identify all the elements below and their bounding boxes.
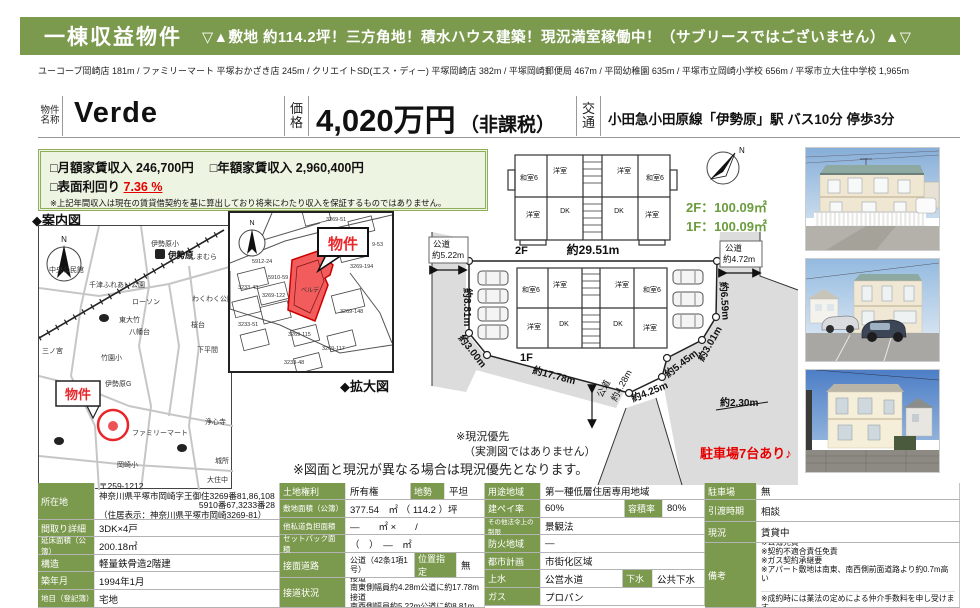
cell: 第一種低層住居専用地域 <box>541 483 705 499</box>
cell: 市街化区域 <box>541 553 705 569</box>
cell: 1994年1月 <box>95 572 280 589</box>
cell: 無 <box>457 553 485 577</box>
price-value: 4,020万円 （非課税） <box>316 95 555 140</box>
cell: 所有権 <box>346 483 411 499</box>
access-label: 交 通 <box>576 96 601 136</box>
svg-text:洋室: 洋室 <box>643 323 657 332</box>
photo-2-image <box>806 259 939 361</box>
guide-map-svg: N 伊勢原 伊勢原小 しまむら 中央公民館 千津ふれあい公園 ローソン わくわく… <box>39 226 233 490</box>
cell: 無 <box>757 483 960 499</box>
cell: ― <box>541 535 705 552</box>
svg-text:DK: DK <box>560 208 570 215</box>
row-header: 構造 <box>38 555 95 571</box>
map-label: 伊勢原小 <box>151 239 179 248</box>
row-header: その他法令上の制限 <box>485 518 541 534</box>
row-header: 引渡時期 <box>705 500 757 521</box>
row-header: 用途地域 <box>485 483 541 499</box>
parcel-name: ベルデ <box>301 286 319 294</box>
row-header: 接面道路 <box>280 553 346 577</box>
map-label: 三ノ宮 <box>42 346 63 355</box>
cell: 公道（42条1項1号） <box>346 553 415 577</box>
sub-header: 容積率 <box>625 500 663 517</box>
area-2f: 2F：100.09㎡ <box>686 200 767 215</box>
cell: 公営水道 <box>541 570 623 587</box>
cell: 377.54 ㎡ （ 114.2 ）坪 <box>346 500 485 517</box>
property-row-divider <box>38 137 960 138</box>
svg-text:3269-148: 3269-148 <box>340 309 363 315</box>
svg-text:3269-122: 3269-122 <box>262 293 285 299</box>
row-header: 土地権利 <box>280 483 346 499</box>
svg-text:DK: DK <box>559 321 569 328</box>
dim-881: 約8.81m <box>461 288 474 326</box>
svg-text:3233-48: 3233-48 <box>284 360 304 366</box>
compass-icon: N <box>707 146 745 184</box>
svg-text:DK: DK <box>614 208 624 215</box>
sub-header: 地勢 <box>411 483 445 499</box>
header-banner: 一棟収益物件 ▽▲敷地 約114.2坪！三方角地！積水ハウス建築！現況満室稼働中… <box>20 17 960 55</box>
svg-text:3269-51: 3269-51 <box>326 217 346 223</box>
row-header: 駐車場 <box>705 483 757 499</box>
floorplan-2f <box>508 155 677 245</box>
table-row: 土地権利 所有権 地勢 平坦 <box>280 483 485 500</box>
photo-1 <box>805 147 940 251</box>
spec-col-d: 駐車場 無 引渡時期 相談 現況 賃貸中 備考 ※公簿売買 ※契約不適合責任免責… <box>705 483 960 608</box>
nearby-facilities: ユーコープ岡崎店 181m / ファミリーマート 平塚おかざき店 245m / … <box>38 64 960 77</box>
svg-text:5910-59: 5910-59 <box>268 275 288 281</box>
spec-col-b: 土地権利 所有権 地勢 平坦 敷地面積（公簿） 377.54 ㎡ （ 114.2… <box>280 483 485 608</box>
floor1-label: 1F <box>520 352 533 364</box>
row-header: 地目（登記簿） <box>38 590 95 607</box>
table-row: 延床面積（公簿） 200.18㎡ <box>38 537 280 555</box>
svg-text:3233-43: 3233-43 <box>238 285 258 291</box>
cell: 賃貸中 <box>757 522 960 542</box>
table-row: 用途地域 第一種低層住居専用地域 <box>485 483 705 500</box>
table-row: 接道状況 北東側幅員約4.72m公道に約6.59m接道 南東側幅員約4.28m公… <box>280 578 485 608</box>
table-row: 所在地 〒259-1212 神奈川県平塚市岡崎字王御住3269番81,86,10… <box>38 483 280 520</box>
row-header: 建ペイ率 <box>485 500 541 517</box>
map-label: 伊勢原G <box>105 379 131 388</box>
table-row: ガス プロパン <box>485 588 705 606</box>
enlarged-map: ベルデ 5912-24 5910-59 3233-43 3269-122 326… <box>228 211 394 373</box>
svg-text:約4.72m: 約4.72m <box>723 254 755 264</box>
plan-area: 和室6 洋室 洋室 和室6 洋室 DK DK 洋室 2F N 2F：100.09… <box>420 140 800 485</box>
svg-text:和室6: 和室6 <box>646 173 664 182</box>
cell: 軽量鉄骨造2階建 <box>95 555 280 571</box>
income-note: ※上記年間収入は現在の賃貸借契約を基に算出しており将来にわたり収入を保証するもの… <box>50 197 476 209</box>
map-label: 城所 <box>215 456 229 465</box>
access-value: 小田急小田原線「伊勢原」駅 バス10分 停歩3分 <box>608 108 895 128</box>
spec-table: 所在地 〒259-1212 神奈川県平塚市岡崎字王御住3269番81,86,10… <box>38 483 960 608</box>
dim-top: 約29.51m <box>567 242 620 257</box>
priority-note-1: ※現況優先 <box>456 429 509 443</box>
svg-text:約5.22m: 約5.22m <box>432 250 464 260</box>
cell: プロパン <box>541 588 705 605</box>
cell: 80% <box>663 500 705 517</box>
cell: 3DK×4戸 <box>95 520 280 536</box>
cell: （ ） ― ㎡ <box>346 535 485 552</box>
row-header: 現況 <box>705 522 757 542</box>
svg-text:物件: 物件 <box>328 235 358 253</box>
map-label: 下平間 <box>197 346 218 354</box>
income-line1: □月額家賃収入 246,700円 □年額家賃収入 2,960,400円 <box>50 157 476 176</box>
svg-text:5912-24: 5912-24 <box>252 259 272 265</box>
table-row: 接面道路 公道（42条1項1号） 位置指定 無 <box>280 553 485 578</box>
svg-text:3269-194: 3269-194 <box>350 264 373 270</box>
priority-note-2: （実測図ではありません） <box>464 444 596 458</box>
svg-text:N: N <box>61 235 67 244</box>
enlarged-map-svg: ベルデ 5912-24 5910-59 3233-43 3269-122 326… <box>230 213 392 371</box>
property-location-marker: 物件 <box>56 381 128 440</box>
property-name: Verde <box>74 97 158 130</box>
svg-text:N: N <box>739 146 745 155</box>
map-label: わくわく公園 <box>192 295 233 303</box>
floor-areas: 2F：100.09㎡ 1F：100.09㎡ <box>686 200 767 234</box>
row-header: セットバック面積 <box>280 535 346 552</box>
photo-3-image <box>806 370 939 472</box>
address-cell: 〒259-1212 神奈川県平塚市岡崎字王御住3269番81,86,108 59… <box>95 483 280 519</box>
map-label: しまむら <box>189 253 217 261</box>
svg-text:洋室: 洋室 <box>617 166 631 175</box>
cell: 相談 <box>757 500 960 521</box>
table-row: 駐車場 無 <box>705 483 960 500</box>
svg-text:公道: 公道 <box>433 239 451 249</box>
sub-header: 位置指定 <box>415 553 457 577</box>
cell: 平坦 <box>445 483 485 499</box>
map-label: 東大竹 <box>119 315 140 324</box>
spec-col-a: 所在地 〒259-1212 神奈川県平塚市岡崎字王御住3269番81,86,10… <box>38 483 280 608</box>
cell: 北東側幅員約4.72m公道に約6.59m接道 南東側幅員約4.28m公道に約17… <box>346 578 485 607</box>
cell: 60% <box>541 500 625 517</box>
table-row: その他法令上の制限 景観法 <box>485 518 705 535</box>
svg-text:洋室: 洋室 <box>553 166 567 175</box>
map-label: 八幡台 <box>129 327 150 336</box>
svg-text:和室6: 和室6 <box>643 285 661 294</box>
compass-icon: N <box>239 220 265 256</box>
svg-text:洋室: 洋室 <box>553 280 567 289</box>
cell: 公共下水 <box>653 570 705 587</box>
income-line2: □表面利回り 7.36 % <box>50 176 476 195</box>
table-row: セットバック面積 （ ） ― ㎡ <box>280 535 485 553</box>
dim-230: 約2.30m <box>720 396 758 409</box>
svg-text:9-53: 9-53 <box>372 242 383 248</box>
property-name-label: 物件 名称 <box>38 96 63 136</box>
compass-icon: N <box>47 235 81 281</box>
flyer-page: 一棟収益物件 ▽▲敷地 約114.2坪！三方角地！積水ハウス建築！現況満室稼働中… <box>0 0 980 608</box>
map-label: 中央公民館 <box>49 265 84 274</box>
svg-text:洋室: 洋室 <box>645 210 659 219</box>
row-header: 都市計画 <box>485 553 541 569</box>
table-row: 上水 公営水道 下水 公共下水 <box>485 570 705 588</box>
row-header: 延床面積（公簿） <box>38 537 95 554</box>
cell: 宅地 <box>95 590 280 607</box>
table-row: 防火地域 ― <box>485 535 705 553</box>
cell: 200.18㎡ <box>95 537 280 554</box>
floor2-label: 2F <box>515 245 528 257</box>
map-label: 桜台 <box>191 320 205 329</box>
table-row: 備考 ※公簿売買 ※契約不適合責任免責 ※ガス契約承継要 ※アパート敷地は南東、… <box>705 543 960 608</box>
photo-1-image <box>806 148 939 250</box>
row-header: 敷地面積（公簿） <box>280 500 346 517</box>
cell: ― ㎡ × / <box>346 518 485 534</box>
cell: 景観法 <box>541 518 705 534</box>
table-row: 築年月 1994年1月 <box>38 572 280 590</box>
svg-text:和室6: 和室6 <box>520 173 538 182</box>
agent-note: ※成約時には業法の定めによる仲介手数料を申し受けます。 <box>761 591 955 607</box>
table-row: 現況 賃貸中 <box>705 522 960 543</box>
svg-text:3233-51: 3233-51 <box>238 322 258 328</box>
remarks-cell: ※公簿売買 ※契約不適合責任免責 ※ガス契約承継要 ※アパート敷地は南東、南西側… <box>757 543 960 607</box>
table-row: 都市計画 市街化区域 <box>485 553 705 570</box>
page-title: 一棟収益物件 <box>44 21 182 51</box>
photo-3 <box>805 369 940 473</box>
svg-text:洋室: 洋室 <box>526 210 540 219</box>
svg-text:3269-117: 3269-117 <box>322 346 345 352</box>
header-catchcopy: ▽▲敷地 約114.2坪！三方角地！積水ハウス建築！現況満室稼働中！（サブリース… <box>202 26 911 47</box>
map-label: 千津ふれあい公園 <box>89 280 145 289</box>
svg-text:公道: 公道 <box>725 243 743 253</box>
svg-text:N: N <box>249 220 254 227</box>
bukken-callout: 物件 <box>65 387 91 402</box>
sub-header: 下水 <box>623 570 653 587</box>
table-row: 構造 軽量鉄骨造2階建 <box>38 555 280 572</box>
table-row: 地目（登記簿） 宅地 <box>38 590 280 608</box>
map-label: 竹園小 <box>101 353 122 362</box>
svg-text:和室6: 和室6 <box>522 285 540 294</box>
photo-2 <box>805 258 940 362</box>
row-header: 上水 <box>485 570 541 587</box>
map-label: ファミリーマート <box>132 429 188 437</box>
svg-text:3269-115: 3269-115 <box>288 332 311 338</box>
enlarged-map-title: ◆拡大図 <box>340 376 389 395</box>
row-header: 防火地域 <box>485 535 541 552</box>
yield-value: 7.36 % <box>124 180 163 194</box>
row-header: 築年月 <box>38 572 95 589</box>
site-plan-svg: 和室6 洋室 洋室 和室6 洋室 DK DK 洋室 2F N 2F：100.09… <box>420 140 800 485</box>
row-header: ガス <box>485 588 541 605</box>
spec-col-c: 用途地域 第一種低層住居専用地域 建ペイ率 60% 容積率 80% その他法令上… <box>485 483 705 606</box>
row-header: 備考 <box>705 543 757 607</box>
table-row: 引渡時期 相談 <box>705 500 960 522</box>
parking-note: 駐車場7台あり♪ <box>700 446 792 461</box>
guide-map: N 伊勢原 伊勢原小 しまむら 中央公民館 千津ふれあい公園 ローソン わくわく… <box>38 225 232 489</box>
svg-text:洋室: 洋室 <box>527 322 541 331</box>
map-label: ローソン <box>132 299 160 306</box>
svg-text:DK: DK <box>613 321 623 328</box>
map-label: 岡崎小 <box>117 460 138 469</box>
row-header: 接道状況 <box>280 578 346 607</box>
svg-text:洋室: 洋室 <box>615 280 629 289</box>
map-label: 浄心寺 <box>205 417 226 426</box>
table-row: 敷地面積（公簿） 377.54 ㎡ （ 114.2 ）坪 <box>280 500 485 518</box>
area-1f: 1F：100.09㎡ <box>686 219 767 234</box>
row-header: 所在地 <box>38 483 95 519</box>
price-label: 価 格 <box>284 96 309 136</box>
